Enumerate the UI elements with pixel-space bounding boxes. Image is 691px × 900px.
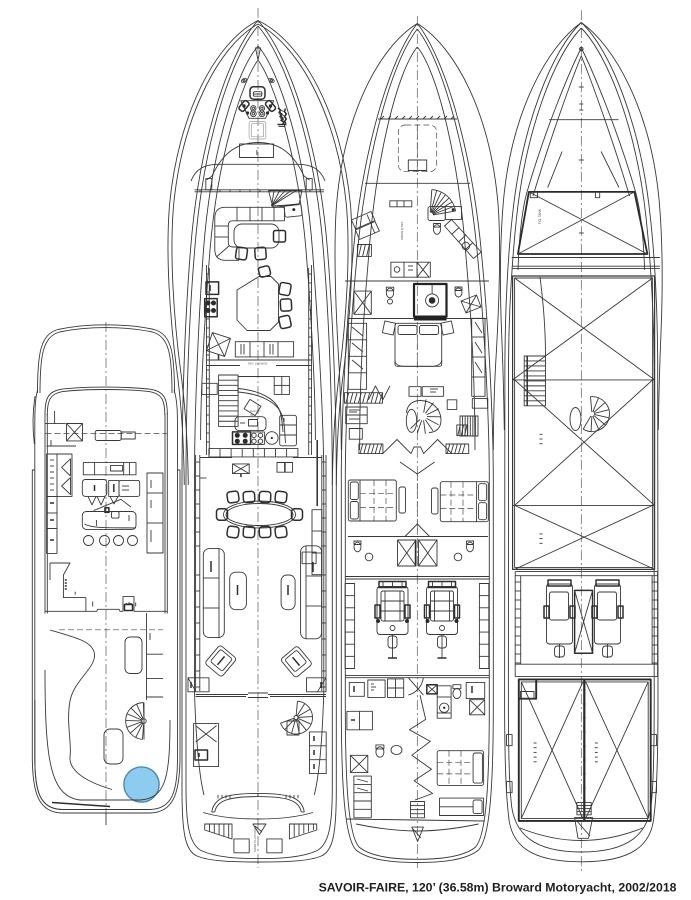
svg-text:SAVOIR-FAIRE, 120’ (36.58m) Br: SAVOIR-FAIRE, 120’ (36.58m) Broward Moto… bbox=[319, 880, 677, 894]
svg-text:CREW QTRS: CREW QTRS bbox=[400, 222, 404, 240]
svg-text:SKY LOUNGE: SKY LOUNGE bbox=[248, 362, 267, 366]
svg-text:SWIM PLATFORM: SWIM PLATFORM bbox=[253, 826, 257, 852]
svg-text:F.O. TANK: F.O. TANK bbox=[538, 208, 542, 224]
